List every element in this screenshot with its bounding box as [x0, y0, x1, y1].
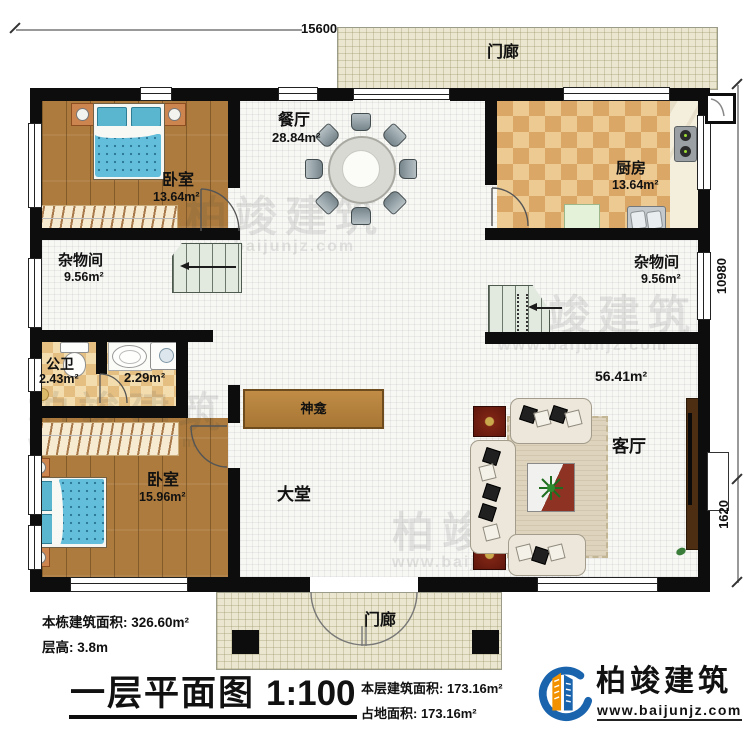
label-kitchen: 厨房 — [616, 161, 646, 177]
dining-chair — [351, 207, 371, 225]
window — [28, 123, 42, 208]
wall — [698, 190, 710, 252]
door-arc-kitchen — [489, 185, 531, 229]
dim-line-top — [16, 29, 302, 31]
shrine-cabinet: 神龛 — [243, 389, 384, 429]
dim-right-porch: 1620 — [716, 500, 731, 529]
porch-column-right — [472, 630, 499, 654]
window — [70, 577, 188, 592]
label-storage-right: 杂物间 — [634, 255, 679, 271]
door-arc-bedroom-top — [198, 186, 242, 234]
brand-site: www.baijunjz.com — [597, 703, 742, 721]
wall — [318, 88, 353, 101]
stairs-rail — [517, 294, 528, 331]
window — [697, 252, 711, 320]
area-bedroom-bottom: 15.96m² — [139, 491, 186, 504]
wall — [30, 330, 213, 342]
label-living: 客厅 — [612, 438, 646, 456]
brand-name: 柏竣建筑 — [596, 666, 732, 698]
wall — [188, 577, 310, 592]
wall — [30, 88, 42, 123]
dining-table-top — [342, 150, 380, 188]
dim-top-value: 15600 — [301, 21, 337, 36]
window — [697, 115, 711, 190]
window — [140, 87, 172, 101]
entry-slider — [353, 88, 450, 100]
window — [278, 87, 318, 101]
label-bedroom-bottom: 卧室 — [147, 473, 179, 490]
dining-chair — [399, 159, 417, 179]
label-hall: 大堂 — [277, 486, 311, 504]
note-floor-height: 层高: 3.8m — [42, 641, 108, 655]
area-living-total: 56.41m² — [595, 369, 647, 384]
window — [563, 87, 670, 101]
wall — [228, 385, 240, 423]
area-dining: 28.84m² — [272, 131, 320, 145]
wall — [485, 228, 710, 240]
wall — [228, 88, 240, 188]
window — [28, 455, 42, 515]
dim-right-main: 10980 — [714, 258, 729, 294]
flue-box — [705, 93, 736, 124]
area-storage-left: 9.56m² — [64, 271, 104, 284]
stairs-arrow-head — [528, 303, 537, 311]
nightstand — [71, 103, 94, 126]
wall — [96, 342, 107, 374]
sofa-top — [510, 398, 592, 444]
label-porch-bottom: 门廊 — [364, 613, 396, 630]
floor-plan-canvas: 柏竣建筑www.baijunjz.com 柏竣建筑www.baijunjz.co… — [0, 0, 750, 738]
stairs-direction-arrow — [188, 266, 236, 268]
plant-icon — [536, 473, 566, 503]
wardrobe — [32, 422, 179, 456]
dim-line-right — [737, 85, 739, 583]
wall — [30, 406, 188, 418]
label-bathroom: 公卫 — [46, 357, 74, 372]
label-bedroom-top: 卧室 — [162, 173, 194, 190]
stat-floor-area: 本层建筑面积: 173.16m² — [361, 682, 503, 696]
stove — [674, 126, 697, 162]
wall — [30, 577, 70, 592]
window — [28, 258, 42, 328]
area-washroom: 2.29m² — [124, 371, 165, 385]
note-building-area: 本栋建筑面积: 326.60m² — [42, 616, 189, 630]
nightstand — [163, 103, 186, 126]
wall — [30, 515, 42, 525]
wall — [485, 332, 710, 344]
window — [537, 577, 658, 592]
plan-scale: 1:100 — [266, 676, 356, 713]
stat-footprint: 占地面积: 173.16m² — [361, 707, 477, 721]
porch-column-left — [232, 630, 259, 654]
door-arc-bedroom-bottom — [188, 423, 230, 470]
label-storage-left: 杂物间 — [58, 253, 103, 269]
wall — [658, 577, 710, 592]
porch-top — [337, 27, 718, 90]
window — [28, 525, 42, 570]
area-bathroom: 2.43m² — [39, 373, 79, 386]
wash-basin — [112, 345, 147, 368]
wall — [30, 88, 140, 101]
brand-logo-icon — [532, 664, 594, 726]
tv — [688, 413, 692, 505]
area-storage-right: 9.56m² — [641, 273, 681, 286]
side-table — [473, 406, 506, 437]
title-underline — [69, 715, 357, 719]
dining-chair — [305, 159, 323, 179]
area-bedroom-top: 13.64m² — [153, 191, 200, 204]
area-kitchen: 13.64m² — [612, 179, 659, 192]
wall — [418, 577, 537, 592]
bed-double — [93, 103, 165, 180]
dining-chair — [351, 113, 371, 131]
wall — [450, 88, 563, 101]
shrine-label: 神龛 — [300, 402, 326, 416]
coffee-table — [527, 463, 575, 512]
wall — [228, 468, 240, 577]
plan-title: 一层平面图 — [70, 676, 255, 713]
sofa-bottom — [508, 534, 586, 576]
kitchen-counter — [670, 100, 698, 228]
wall — [30, 392, 42, 455]
dim-tick — [9, 22, 20, 33]
label-dining: 餐厅 — [278, 113, 310, 130]
stairs-arrow-head — [180, 262, 189, 270]
wall — [485, 100, 497, 185]
stairs-direction-arrow — [536, 307, 562, 309]
wall — [172, 88, 278, 101]
label-porch-top: 门廊 — [487, 45, 519, 62]
